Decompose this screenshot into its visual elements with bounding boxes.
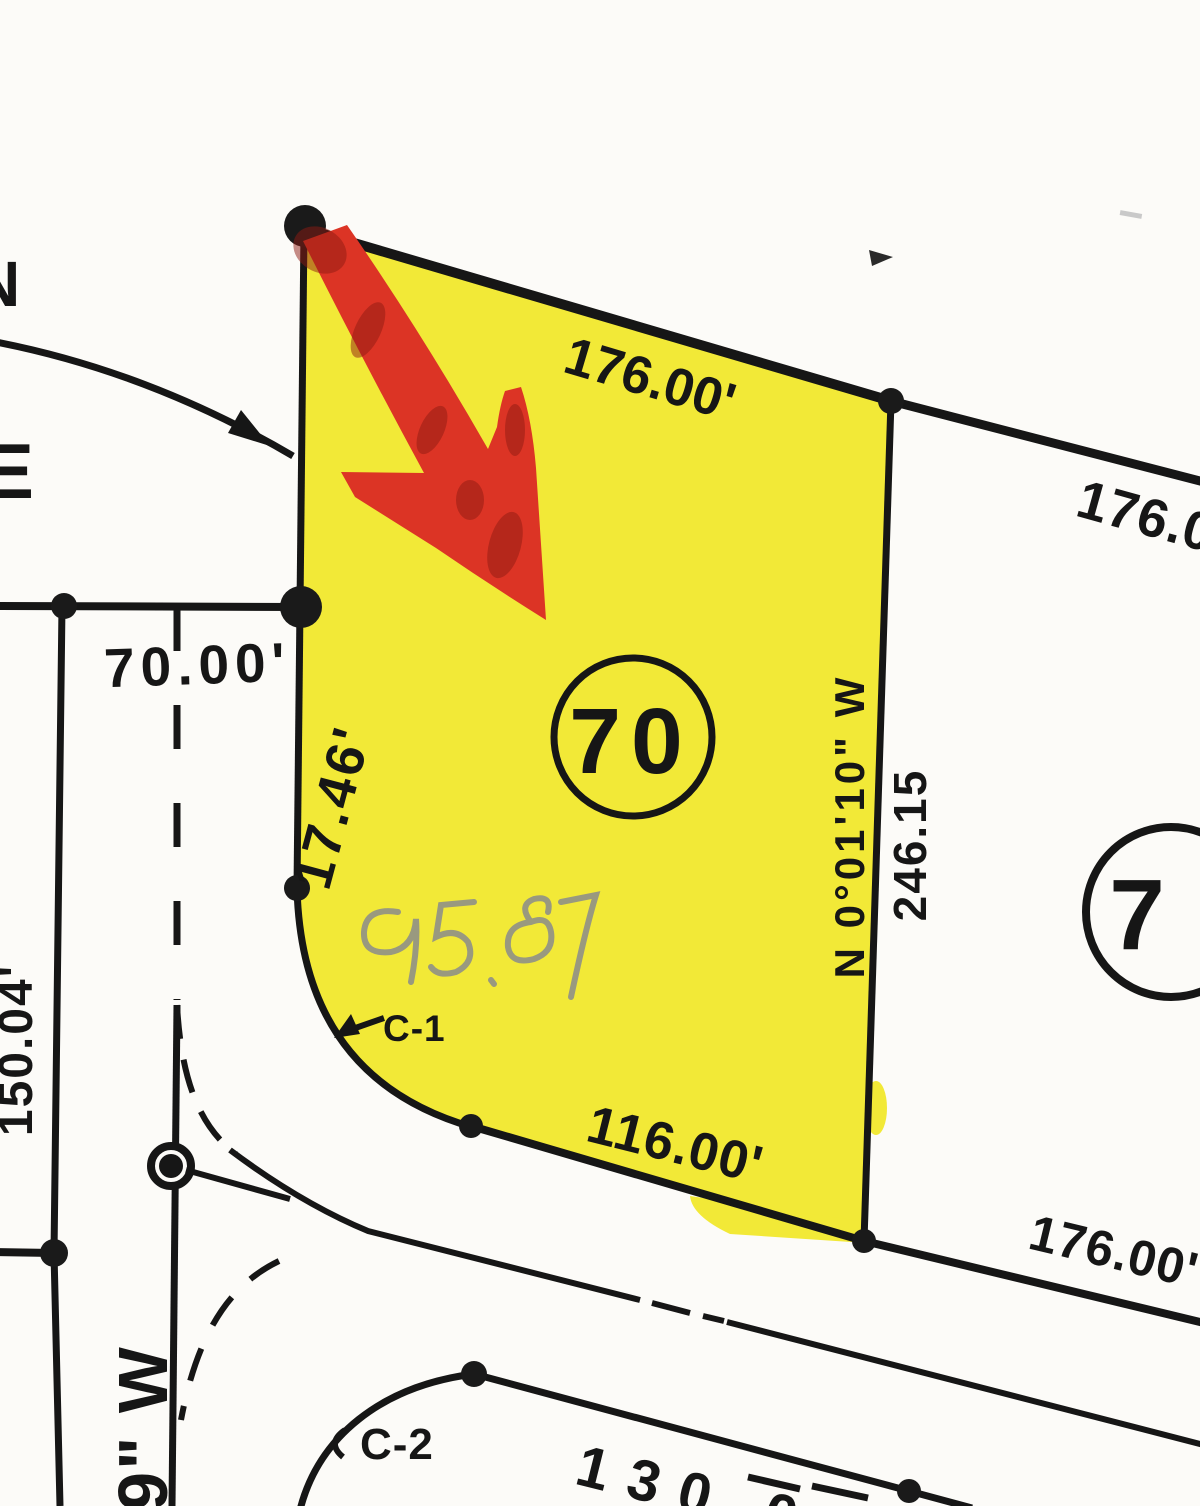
svg-text:70: 70 <box>569 689 692 793</box>
svg-text:7: 7 <box>1109 859 1165 971</box>
svg-text:C-2: C-2 <box>360 1420 434 1469</box>
svg-text:150.04': 150.04' <box>0 964 43 1136</box>
svg-text:E: E <box>0 427 34 515</box>
svg-text:70.00': 70.00' <box>103 631 292 699</box>
svg-text:9" W: 9" W <box>104 1345 182 1506</box>
svg-text:N: N <box>0 248 20 320</box>
svg-text:C-1: C-1 <box>383 1008 446 1049</box>
svg-text:246.15: 246.15 <box>884 769 936 922</box>
svg-text:N 0°01'10" W: N 0°01'10" W <box>826 674 873 979</box>
